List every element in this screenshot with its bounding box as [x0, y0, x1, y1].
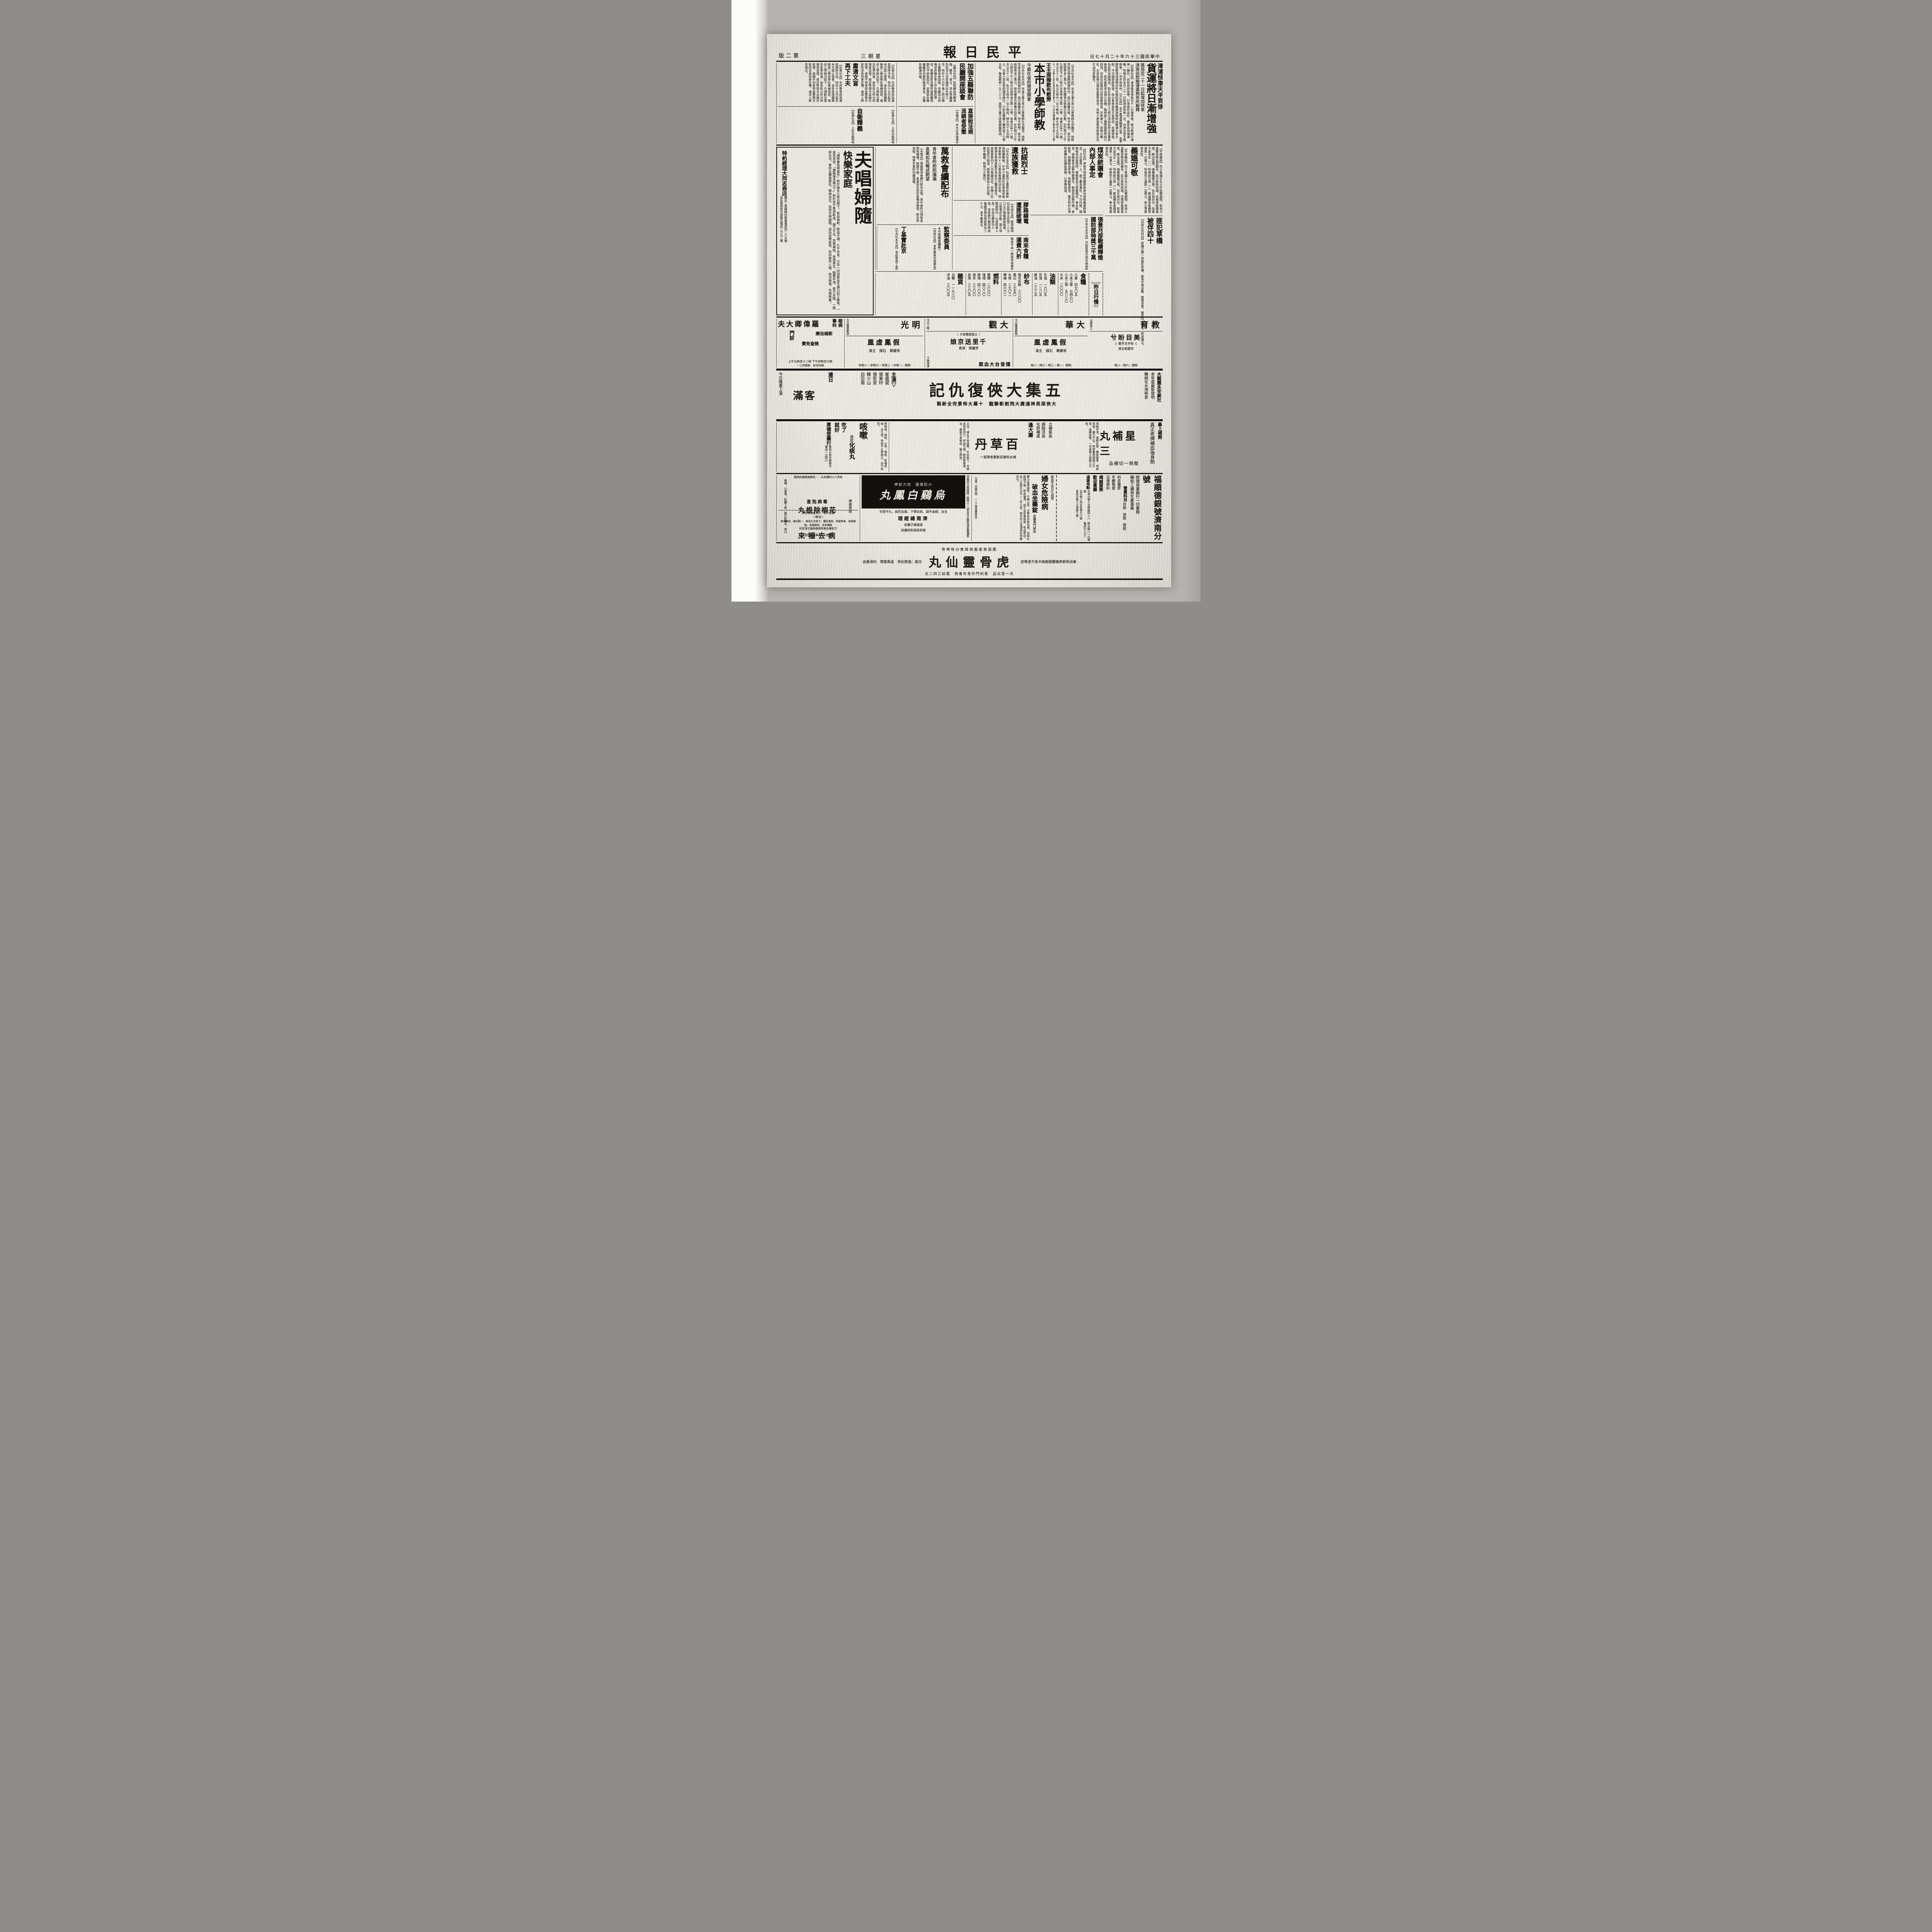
ad-sanxing-line: 真正老牌補血強身劑 — [1149, 422, 1156, 472]
list-item: 嗶嘰 四六六二 — [1003, 273, 1007, 315]
market-title-block: ◇△△◇ 昨日行情 ▽▽ — [1088, 273, 1103, 315]
banner-name: 丸仙靈骨虎 — [929, 553, 1014, 570]
article-nanlai-headline: 南來食糧 運費六折 — [1015, 237, 1029, 270]
ad-baicao-line: 一第牌老藥聖名馳科女婦 — [980, 455, 1016, 459]
ad-huatanwan-seller: 厚德堂藥行 — [825, 422, 832, 446]
ad-hualiu-top: 根除此服根病柳花・・丸本讚均士人界各 — [778, 475, 858, 479]
ad-doctor-note: 一三四號掛 診往科婦 — [778, 364, 843, 367]
list-item: 張宏安 — [871, 372, 877, 418]
ad-kunbaodan-slogan-main: 夫唱婦隨 — [853, 151, 871, 311]
market-items: 白糖 一一九八〇洋油 三〇〇五 — [946, 273, 955, 315]
article-meitan-headline: 煤炭統購會 內部人事定 — [1087, 147, 1103, 213]
cinema-daguan-head: 今日上映 — [926, 319, 930, 330]
ad-bank-line1: 辦理商業銀行一切業務 — [1135, 475, 1139, 514]
column-lianfang-shuifa: 加強五縣聯防 民廳開座談會 【勵志社訊】民政廳為明瞭濟陽、鄒平、章丘、泗水等縣聯… — [896, 63, 973, 143]
article-yiao: 【平度縣訊】烈士崔瑞正女士於抗戰期間，對地方遊擊部隊協助頗多，此次匪陷該城，氏倡… — [1105, 147, 1163, 214]
market-section-name: 雜貨 — [956, 273, 964, 315]
ad-doctor-luo: 眼病 專科 夫大卿偉羅 療治械新 門診 費免查檢 上午九時至十二時 下午四時至六… — [776, 319, 843, 367]
market-section-name: 燃料 — [992, 273, 1000, 315]
ad-bank-line2: 輔助工礦商生產事業 — [1129, 475, 1134, 510]
ad-wuji-blackbox: 神如力効 服易粒小 丸鳳白鷄烏 — [862, 475, 965, 509]
ad-huatanwan: 師傅咳、勞咳、火咳、喘咳、氣喘痰咳、百日咳，常咳不止者服之，永不再犯。 咳嗽 速… — [776, 422, 887, 472]
ad-kunbaodan-slogan-sub: 快樂家庭 — [842, 151, 851, 311]
ad-wuji-seller2: 房藥四利馬街利普 — [862, 528, 965, 532]
cinema-ming-film: 凰虛鳳假 — [846, 337, 923, 347]
divider — [877, 224, 951, 225]
ad-bank-biz: 存款 放款 匯款 — [1122, 502, 1127, 530]
article-jiancha-note: ▲不得兼省議員▽ — [937, 226, 942, 270]
market-section-fuel: 燃料 雙鹽 二六六〇塊煤 四〇二〇飾煤 四二〇〇煤末 三三〇〇泉煤 三三〇五 — [966, 273, 1000, 315]
ad-bank-remits: 天津分號＝吉林路四十八號 北平號＝四交民巷九十號 青島分號＝天津路十號 — [1058, 490, 1091, 521]
ad-funv: 經血不見日久成勞 婦女危險病 破血坐藥錠 此藥專門破血 藥力直達病所，不損元氣，… — [971, 475, 1054, 541]
ad-wuji: 濟南四大馬路緯二路四十一號友光大藥房馮家藥舖售 神如力効 服易粒小 丸鳳白鷄烏 … — [860, 475, 970, 541]
market-deco-top: ◇△△◇ — [1091, 281, 1101, 284]
list-item: 棉花名駒 三八〇〇 — [1017, 273, 1022, 315]
article-jiaolu-headline: 膠路線電 遭匪破壞 — [1015, 202, 1029, 234]
banner-top: 奇神效分實與用服者患屆歷 — [942, 547, 997, 552]
theater-info: 大觀園永安劇社 本年度最新發明 機械化水洩佈景 — [1097, 372, 1162, 418]
list-item: 雙鹽 二六六〇 — [987, 273, 991, 315]
article-nanlai-body: 路局今為一般南來食粮起見，特將南來食粮運費打六折，將南來與南浦段食粮運費特予減低… — [954, 237, 1014, 270]
ad-bank-biz-label: 營業科目 — [1122, 486, 1128, 502]
market-section-food: 食糧 小麥 四七〇五小米三等 七四六〇小米二等 五八三〇大米 二〇〇〇 — [1058, 273, 1087, 315]
article-shuifa-headline: 直接稅法規 派銷者受懲 — [960, 108, 973, 143]
column-meitan-zhang: 煤炭統購會 內部人事定 【同社訊】濟南市煤炭統購委員會內部組織業經確定，主任委員… — [1030, 147, 1103, 270]
article-wanjiu: 萬救會續配布 青年會昨熙熙攘攘 袁業如氏暢述期望 【本報訊】萬國救濟會續行配布衣… — [877, 147, 951, 223]
masthead-weekday: 三期星 — [861, 52, 883, 60]
masthead: 日七十月二十年六十三國民華中 報日民平 三期星 版二第 — [776, 40, 1163, 60]
ad-kunbaodan: 夫唱婦隨 快樂家庭 「調經養血坤寶丹」對於婦女之赤白帶下，氣血兩虧，經血不調，久… — [776, 147, 874, 315]
market-items: 小麥 四七〇五小米三等 七四六〇小米二等 五八三〇大米 二〇〇〇 — [1060, 273, 1078, 315]
article-wang-subhead: 今晨在省府禮堂開會 — [1026, 63, 1032, 143]
list-item: 洋油 三〇〇五 — [946, 273, 951, 315]
market-items: 生油 一六〇五豆油 一二八五香油 二三二五 — [1034, 273, 1048, 315]
list-item: 崔盛斌 — [884, 372, 889, 418]
list-item: 塊煤 四〇二〇 — [982, 273, 986, 315]
column-middle-wrap: 煤炭統購會 內部人事定 【同社訊】濟南市煤炭統購委員會內部組織業經確定，主任委員… — [875, 147, 1103, 315]
article-wang-headline: 本市小學師教 — [1032, 63, 1044, 143]
article-wang-kicker: 王主席撥款布慰勞 — [1045, 63, 1052, 143]
cinema-edu-times: 時八・時六：間時 — [1089, 363, 1163, 367]
article-shuifa: 直接稅法規 派銷者受懲 【本報訊】本市近來發現有人假借直接稅法規派銷圖利情事，該… — [898, 108, 973, 143]
newspaper-scan: 日七十月二十年六十三國民華中 報日民平 三期星 版二第 津浦快車天半到徐 貨運將… — [731, 0, 1201, 602]
banner-right-text: 症等遂不身半麻痠腿腰痛疼節骨治專 — [1021, 559, 1077, 564]
divider — [954, 235, 1029, 236]
banner-left-text: 血養濕利 寒散風追 骨壯筋強：能功 — [862, 559, 922, 564]
ad-kunbaodan-agent: 特約經理大同志商店 總店二馬路緯四路東電話四二八五號 支店普利街中間路北電話二六… — [779, 151, 788, 311]
ad-bank-features: 利息優厚 手續簡便 迅速便利 — [1104, 475, 1121, 541]
market-section-misc: 雜貨 白糖 一一九八〇洋油 三〇〇五 — [875, 273, 964, 315]
divider — [778, 106, 895, 107]
article-wang-body-right: 【中央社本市訊】本省王兼主席以小學教師生活艱苦，除經常設法增進教師福利外，茲以歲… — [1053, 63, 1075, 143]
cinema-ming-name: 光明 — [901, 319, 923, 330]
column-sumang-ziwei: 【民衆社訊】市府教育局為澈底掃除文盲，特自十五日起至本月底止復查，並各區接續開辦… — [776, 63, 895, 143]
masthead-rule — [776, 61, 1163, 62]
ad-hualiu: 根除此服根病柳花・・丸本讚均士人界各 神速見效 星剋病毒 丸根除柳花 楊梅、口便… — [778, 475, 858, 509]
divider — [926, 331, 1011, 332]
ad-kunbaodan-agent-addr: 總店二馬路緯四路東電話四二八五號 支店普利街中間路北電話二六九二號 — [779, 196, 788, 311]
ad-baicao-kicker: 調經活血 化瘀補虛 — [1035, 422, 1045, 472]
row-jiancha-dingji: 監察委員 ▲不得兼省議員▽ 【自由社訊】省參議員自當選為監察委員後，能否兼任省參… — [877, 226, 951, 270]
ad-bingqu-seller: ◇經售處◇ — [778, 541, 858, 541]
ad-funv-note: （注意：孕婦忌用 一二三號坐藥每粒） — [973, 475, 977, 541]
list-item: 香油 二三二五 — [1034, 273, 1038, 315]
ad-sanxing-side: 立補氣血 — [1047, 422, 1053, 472]
list-item: 小麥 四七〇五 — [1074, 273, 1078, 315]
page-content: 日七十月二十年六十三國民華中 報日民平 三期星 版二第 津浦快車天半到徐 貨運將… — [776, 40, 1163, 582]
ad-bingqu-top: 好你保准後天六 和平性藥 — [778, 511, 858, 515]
ad-funv-name: 破血坐藥錠 — [1031, 484, 1039, 513]
ad-hualiu-kicker: 星剋病毒 — [807, 498, 828, 505]
newspaper-page: 日七十月二十年六十三國民華中 報日民平 三期星 版二第 津浦快車天半到徐 貨運將… — [767, 34, 1171, 587]
article-zhangjing: 張景月部戰績輝煌 國防部特獎三千萬 【中央社本市訊】月前張景月部卒挫頑敵，激戰確… — [1030, 217, 1103, 270]
ad-bingqu-root: ◁根治▷ — [778, 515, 858, 519]
article-sumang-body-right: 【民衆社訊】市府教育局為澈底掃除文盲，特自十五日起至本月底止復查，並各區接續開辦… — [860, 63, 895, 105]
article-ziwei-body: 【民衆社訊】人民自衛問題，於昨日第二次座談會中，就人民自衛武力及建軍問題與地方團… — [778, 108, 855, 143]
divider — [898, 106, 973, 107]
cinema-daguan-next-note: 下期准演 — [926, 357, 930, 367]
ad-sanxing-kicker: 最上補劑 — [1156, 422, 1163, 472]
article-jiaolu-body: 【自由社訊】膠濟線周村莊與梁王莊間二八五〇公尺電線被匪破壞，以致電訊中斷，現正加… — [954, 202, 1014, 234]
divider — [778, 510, 858, 510]
market-section-yarn: 紗布 棉花名駒 三八〇〇鳳山 三七五〇丸珠 二七〇二嗶嘰 四六六二 — [1001, 273, 1031, 315]
article-jinpu-body: 【民衆社訊】津浦路濟徐段自十一日通車後，每日除開行通車一輛外，尚有各段加車，行車… — [1076, 63, 1134, 143]
article-jinpu-headline: 貨運將日漸增強 — [1146, 63, 1156, 143]
ad-wuji-seller1: 房藥子樂路張 — [862, 523, 965, 527]
ad-baicao-body: 主治：婦女子宮虛寒、吐血帶下、月經血忽多忽少、停血不調、經色黑紫或淡、婚後不育等… — [891, 422, 969, 472]
theater-full-block: 連日 滿客 今日隆重上演 — [777, 372, 834, 418]
article-kangsui-headline: 抗綏烈士 遺族獲救 — [1010, 147, 1029, 199]
ad-sanxing-tag: 品補切一倒壓 — [1109, 460, 1139, 466]
article-zhangjing-headline: 張景月部戰績輝煌 國防部特獎三千萬 — [1089, 217, 1103, 270]
masthead-date: 日七十月二十年六十三國民華中 — [1090, 53, 1160, 60]
ad-bank-addr: 緯五路八一九號 電話九八五一 — [1058, 522, 1091, 541]
ad-wuji-cure: 孕受不久、病百女婦、下帶白赤、調不血經：治主 — [862, 510, 965, 514]
article-wang: 【中央社本市訊】本省王兼主席以小學教師生活艱苦，除經常設法增進教師福利外，茲以歲… — [975, 63, 1075, 143]
article-ziwei: 【民衆社訊】人民自衛問題，於昨日第二次座談會中，就人民自衛武力及建軍問題與地方團… — [778, 108, 895, 143]
cinema-daguan: 觀大 今日上映 〕片鉅豔香裝古〔 娘京送里千 賓賀 華麗李 案血大台音播 下期准… — [925, 319, 1011, 367]
article-dingji-body: 【中央社本市訊】省府委員丁基實氏，頃因公赴京。 — [878, 226, 898, 270]
ad-baicao-promo: 逢大廉 — [1027, 422, 1034, 472]
ad-doctor-times: 上午九時至十二時 下午四時至六時 — [778, 359, 843, 364]
ad-funv-headline: 婦女危險病 — [1039, 475, 1049, 541]
band-rule-4 — [776, 542, 1163, 543]
theater-title: 記仇復俠大集五 — [929, 383, 1065, 398]
cinema-ming-cast: 演主 揮石 華麗李 — [846, 348, 923, 353]
cinema-edu-film: 兮盼目美 — [1089, 332, 1163, 342]
theater-full2: 滿客 — [793, 388, 816, 402]
theater-subtitle: 製新全完景佈大幕十 龍摯斬劍飛大廣通神英梁俠大 — [937, 401, 1057, 407]
theater-full1: 連日 — [827, 372, 834, 418]
band-medicines: 最上補劑 真正老牌補血強身劑 丸補星三 品補切一倒壓 滑精早洩、遺精失勢、腰痠腿… — [776, 422, 1163, 472]
ad-doctor-line1: 療治械新 — [816, 330, 833, 340]
article-wanjiu-sub1: 青年會昨熙熙攘攘 — [931, 147, 937, 223]
ad-sanxing: 最上補劑 真正老牌補血強身劑 丸補星三 品補切一倒壓 滑精早洩、遺精失勢、腰痠腿… — [1047, 422, 1163, 472]
ad-funv-intro: 此藥專門破血 — [1032, 514, 1037, 533]
list-item: 豆油 一二八五 — [1038, 273, 1043, 315]
ad-wuji-name: 丸鳳白鷄烏 — [879, 487, 947, 502]
article-dingji-headline: 丁基實赴京 — [899, 226, 907, 270]
column-hualiu-bingqu: 根除此服根病柳花・・丸本讚均士人界各 神速見效 星剋病毒 丸根除柳花 楊梅、口便… — [776, 475, 858, 541]
cinema-daguan-name: 觀大 — [989, 319, 1011, 330]
ad-baicao: 調經活血 化瘀補虛 逢大廉 丹草百 一第牌老藥聖名馳科女婦 主治：婦女子宮虛寒、… — [889, 422, 1045, 472]
list-item: 白糖 一一九八〇 — [951, 273, 955, 315]
divider — [954, 200, 1029, 201]
article-shuifa-body: 【本報訊】本市近來發現有人假借直接稅法規派銷圖利情事，該局對於此種情形特佈告周知… — [898, 108, 959, 143]
article-jiancha-body: 【自由社訊】省參議員自當選為監察委員後，能否兼任省參議員問題，現已有指示：當選為… — [908, 226, 936, 270]
band-rule-3 — [776, 473, 1163, 474]
article-jinpu-kicker: 津浦快車天半到徐 — [1156, 63, 1163, 143]
article-zhangjing-body: 【中央社本市訊】月前張景月部卒挫頑敵，激戰確保重鎮，戰績輝煌，國防部頃特獎三千萬… — [1030, 217, 1088, 270]
cinema-dahua-name: 華大 — [1065, 319, 1088, 330]
article-dingji: 丁基實赴京 【中央社本市訊】省府委員丁基實氏，頃因公赴京。 — [877, 226, 907, 270]
article-wanjiu-sub2: 袁業如氏暢述期望 — [924, 147, 930, 223]
article-ziwei-body-right: 【民衆社訊】人民自衛問題，於昨日第二次座談會中，就人民自衛武力及建軍問題與地方團… — [864, 108, 895, 143]
article-meitan-body: 【同社訊】濟南市煤炭統購委員會內部組織業經確定，主任委員一人，由丁廳長兼任，下分… — [1030, 147, 1086, 213]
ad-huatanwan-pre: 速效 — [849, 435, 854, 442]
list-item: 丸珠 二七〇二 — [1008, 273, 1012, 315]
ad-bingqu-name: 來福去病 — [778, 531, 858, 541]
column-wanjiu: 萬救會續配布 青年會昨熙熙攘攘 袁業如氏暢述期望 【本報訊】萬國救濟會續行配布衣… — [875, 147, 951, 270]
cinema-edu-cast: 演主妮娜安 — [1089, 347, 1163, 351]
list-item: 小米三等 七四六〇 — [1069, 273, 1073, 315]
article-yiao-body-right: 【平度縣訊】烈士崔瑞正女士於抗戰期間，對地方遊擊部隊協助頗多，此次匪陷該城，氏倡… — [1140, 147, 1163, 214]
masthead-edition: 版二第 — [779, 52, 801, 60]
article-jiaolu: 膠路線電 遭匪破壞 【自由社訊】膠濟線周村莊與梁王莊間二八五〇公尺電線被匪破壞，… — [954, 202, 1029, 234]
ad-bingqu-line: 好定准它服快趕者效無丸藥針打 — [778, 527, 858, 531]
article-jiancha-headline: 監察委員 — [942, 226, 951, 270]
band-bottom-ads: 福順德銀號濟南分號 辦理商業銀行一切業務 輔助工礦商生產事業 營業科目 存款 放… — [776, 475, 1163, 541]
article-ziwei-headline: 自衛釋義 — [855, 108, 864, 143]
market-title: 昨日行情 — [1092, 284, 1100, 304]
theater-today: 今日隆重上演 — [777, 372, 783, 418]
ad-bank-slogans: 竭誠服務 歡迎惠顧 — [1092, 475, 1104, 541]
market-section-name: 油類 — [1048, 273, 1056, 315]
ad-huatanwan-body-r: 師傅咳、勞咳、火咳、喘咳、氣喘痰咳、百日咳，常咳不止者服之，永不再犯。 — [870, 422, 887, 472]
cinema-dahua-film: 凰虛鳳假 — [1014, 337, 1088, 347]
cinema-edu-tag: 山東省立 — [1089, 319, 1093, 330]
band-theater-ad: 大觀園永安劇社 本年度最新發明 機械化水洩佈景 記仇復俠大集五 製新全完景佈大幕… — [776, 369, 1163, 421]
market-section-name: 紗布 — [1022, 273, 1031, 315]
cinema-dahua-cast: 演主 揮石 華麗李 — [1014, 348, 1088, 353]
article-sumang-body: 【民衆社訊】市府教育局為澈底掃除文盲，特自十五日起至本月底止復查，並各區接續開辦… — [778, 63, 842, 105]
ad-funv-body: 藥力直達病所，不損元氣，且無如自取毛病。治婦女經閉不通、瘀血凝滯、血不見氣裏血聚… — [978, 475, 1030, 541]
article-jinpu: 津浦快車天半到徐 貨運將日漸增強 路局定二十一日起增加快車 濟南站對搬運業務有所… — [1076, 63, 1163, 143]
ad-kunbaodan-agent-name: 特約經理大同志商店 — [779, 151, 788, 196]
list-item: 白亞南 — [859, 372, 865, 418]
ad-huatanwan-big: 咳嗽 — [857, 422, 869, 472]
ad-funv-side: 經血不見日久成勞 — [1050, 475, 1054, 541]
ad-doctor-name: 夫大卿偉羅 — [778, 319, 820, 329]
cinema-dahua-times: 時八・時六・時三・時一：間時 — [1014, 363, 1088, 367]
cinema-edu: 育教 山東省立 兮盼目美 》幕字文中有《 演主妮娜安 時八・時六：間時 — [1089, 319, 1163, 367]
list-item: 大米 二〇〇〇 — [1060, 273, 1064, 315]
ad-huatanwan-name: 化痰丸 — [848, 442, 856, 459]
theater-troupe: 大觀園永安劇社 — [1156, 372, 1162, 418]
market-deco-bottom: ▽▽ — [1094, 304, 1098, 308]
article-yiao-body: 【平度縣訊】烈士崔瑞正女士於抗戰期間，對地方遊擊部隊協助頗多，此次匪陷該城，氏倡… — [1105, 147, 1128, 214]
ad-huatanwan-relief: 吃了 就好 — [833, 422, 847, 472]
cinema-edu-note: 》幕字文中有《 — [1089, 342, 1163, 346]
market-items: 雙鹽 二六六〇塊煤 四〇二〇飾煤 四二〇〇煤末 三三〇〇泉煤 三三〇五 — [967, 273, 991, 315]
article-lianfang: 加強五縣聯防 民廳開座談會 【勵志社訊】民政廳為明瞭濟陽、鄒平、章丘、泗水等縣聯… — [898, 63, 973, 105]
cinema-dahua: 華大 今日隆重獻映 凰虛鳳假 演主 揮石 華麗李 時八・時六・時三・時一：間時 — [1013, 319, 1088, 367]
article-wang-body: 【中央社本市訊】本省王兼主席以小學教師生活艱苦，除經常設法增進教師福利外，茲以歲… — [976, 63, 1025, 143]
ad-doctor-spec: 眼病 專科 — [831, 319, 843, 327]
ad-doctor-line2: 費免查檢 — [778, 340, 843, 347]
theater-cast-list: 崔盛斌張美玲張宏安韓少山白亞南 — [859, 372, 889, 418]
list-item: 張美玲 — [878, 372, 883, 418]
cinema-daguan-cast: 賓賀 華麗李 — [926, 346, 1011, 350]
article-yiao-headline: 義媼可敬 — [1129, 147, 1139, 214]
list-item: 韓少山 — [866, 372, 871, 418]
cinema-daguan-film: 娘京送里千 — [926, 337, 1011, 346]
list-item: 飾煤 四二〇〇 — [977, 273, 981, 315]
cinema-edu-name: 育教 — [1140, 319, 1163, 330]
list-item: 煤末 三三〇〇 — [972, 273, 976, 315]
article-sumang: 【民衆社訊】市府教育局為澈底掃除文盲，特自十五日起至本月底止復查，並各區接續開辦… — [778, 63, 895, 105]
article-lianfang-body: 【勵志社訊】民政廳為明瞭濟陽、鄒平、章丘、泗水等縣聯防狀況以及各縣研討冬季工作，… — [898, 63, 957, 105]
ad-bank-lines: 辦理商業銀行一切業務 輔助工礦商生產事業 — [1128, 475, 1139, 541]
masthead-title: 報日民平 — [943, 46, 1030, 60]
divider — [1105, 216, 1163, 216]
divider — [875, 271, 1103, 272]
banner-bottom: 五二四三話電 西會年青外門利普 品出堂一天 — [925, 571, 1014, 576]
band-top-news: 津浦快車天半到徐 貨運將日漸增強 路局定二十一日起增加快車 濟南站對搬運業務有所… — [776, 63, 1163, 143]
market-items: 棉花名駒 三八〇〇鳳山 三七五〇丸珠 二七〇二嗶嘰 四六六二 — [1003, 273, 1022, 315]
article-kangsui-body: 【中央社本市訊】抗綏烈士遺族於春節前將獲撫救，中央十遺族於此事係省振濟會第四十八… — [954, 147, 1009, 199]
article-wanjiu-headline: 萬救會續配布 — [938, 147, 951, 223]
cinema-mingguang: 光明 今日隆重獻演 凰虛鳳假 演主 揮石 華麗李 半時八・半時六・半時三・半時一… — [844, 319, 923, 367]
article-jiancha: 監察委員 ▲不得兼省議員▽ 【自由社訊】省參議員自當選為監察委員後，能否兼任省參… — [908, 226, 950, 270]
article-wanjiu-body: 【本報訊】萬國救濟會續行配布衣物，青年會昨日領取者熙熙攘攘，絡繹不絕，袁業如氏對… — [877, 147, 923, 223]
market-table: ◇△△◇ 昨日行情 ▽▽ 食糧 小麥 四七〇五小米三等 七四六〇小米二等 五八三… — [875, 273, 1103, 315]
list-item: 鳳山 三七五〇 — [1012, 273, 1017, 315]
article-sumang-headline: 肅清文盲 再下工夫 — [843, 63, 859, 105]
ad-sanxing-body: 滑精早洩、遺精失勢、腰痠腿疼、神經衰弱、腦力不足，用興奮劑調服之立效，強腰固精，… — [1053, 422, 1099, 472]
theater-line1: 本年度最新發明 — [1149, 372, 1155, 418]
divider — [1014, 336, 1088, 336]
band-banner: 奇神效分實與用服者患屆歷 症等遂不身半麻痠腿腰痛疼節骨治專 丸仙靈骨虎 血養濕利… — [776, 544, 1163, 580]
ad-sanxing-name: 丸補星三 — [1100, 428, 1148, 458]
theater-cast-block: 主演▽ 崔盛斌張美玲張宏安韓少山白亞南 — [835, 372, 897, 418]
market-section-name: 食糧 — [1079, 273, 1087, 315]
ad-baicao-name: 丹草百 — [975, 435, 1021, 452]
column-kangsui: 抗綏烈士 遺族獲救 【中央社本市訊】抗綏烈士遺族於春節前將獲撫救，中央十遺族於此… — [952, 147, 1029, 270]
ad-bank-name: 福順德銀號濟南分號 — [1140, 475, 1163, 541]
ad-bingqu-list: 發未痛耳、破未點一、病毛久年疳下、腫紅毒餘、疼痠骨串、眉落髮脫、疼痠肢四、淨多爛… — [778, 519, 858, 527]
ad-bingqu: 好你保准後天六 和平性藥 ◁根治▷ 發未痛耳、破未點一、病毛久年疳下、腫紅毒餘、… — [778, 511, 858, 541]
ad-huatanwan-addr: 普利大街中間路北 電話一五四六 — [825, 446, 832, 472]
ad-doctor-menzhen: 門診 — [788, 330, 795, 340]
list-item: 泉煤 三三〇五 — [967, 273, 971, 315]
divider — [1030, 215, 1103, 215]
ad-wuji-side: 濟南四大馬路緯二路四十一號友光大藥房馮家藥舖售 — [966, 475, 970, 541]
ad-wuji-slogan: 神如力効 服易粒小 — [894, 482, 932, 487]
divider — [1089, 331, 1163, 332]
theater-title-block: 記仇復俠大集五 製新全完景佈大幕十 龍摯斬劍飛大廣通神英梁俠大 — [899, 372, 1095, 418]
article-nanlai: 南來食糧 運費六折 路局今為一般南來食粮起見，特將南來食粮運費打六折，將南來與南… — [954, 237, 1029, 270]
cinema-daguan-next: 案血大台音播 — [979, 361, 1011, 367]
cinema-ming-head: 今日隆重獻演 — [846, 319, 850, 335]
divider — [846, 336, 923, 336]
cinema-dahua-head: 今日隆重獻映 — [1014, 319, 1018, 335]
column-right-edge: 【平度縣訊】烈士崔瑞正女士於抗戰期間，對地方遊擊部隊協助頗多，此次匪陷該城，氏倡… — [1105, 147, 1163, 315]
band-cinemas: 育教 山東省立 兮盼目美 》幕字文中有《 演主妮娜安 時八・時六：間時 華大 今… — [776, 319, 1163, 367]
ad-kunbaodan-body: 「調經養血坤寶丹」對於婦女之赤白帶下，氣血兩虧，經血不調，久不孕育，以及一切因經… — [789, 151, 840, 311]
list-item: 生油 一六〇五 — [1043, 273, 1048, 315]
list-item: 小米二等 五八三〇 — [1064, 273, 1068, 315]
article-kangsui: 抗綏烈士 遺族獲救 【中央社本市訊】抗綏烈士遺族於春節前將獲撫救，中央十遺族於此… — [954, 147, 1029, 199]
ad-bank-remit-label: 通匯地點 — [1058, 475, 1091, 489]
band-rule-1 — [776, 145, 1163, 146]
article-jinpu-subheads: 路局定二十一日起增加快車 濟南站對搬運業務有所解釋 — [1134, 63, 1145, 143]
theater-cast-label: 主演▽ — [890, 372, 897, 418]
cinema-ming-times: 半時八・半時六・半時三・半時一：間時 — [846, 363, 923, 367]
article-meitan: 煤炭統購會 內部人事定 【同社訊】濟南市煤炭統購委員會內部組織業經確定，主任委員… — [1030, 147, 1103, 213]
middle-articles: 煤炭統購會 內部人事定 【同社訊】濟南市煤炭統購委員會內部組織業經確定，主任委員… — [875, 147, 1103, 270]
ad-wuji-mgr: 理經總南濟 — [862, 515, 965, 522]
market-section-oil: 油類 生油 一六〇五豆油 一二八五香油 二三二五 — [1032, 273, 1056, 315]
ad-bank: 福順德銀號濟南分號 辦理商業銀行一切業務 輔助工礦商生產事業 營業科目 存款 放… — [1056, 475, 1163, 541]
band-middle: 【平度縣訊】烈士崔瑞正女士於抗戰期間，對地方遊擊部隊協助頗多，此次匪陷該城，氏倡… — [776, 147, 1163, 315]
cinema-daguan-tag: 〕片鉅豔香裝古〔 — [926, 332, 1011, 337]
theater-line2: 機械化水洩佈景 — [1143, 372, 1148, 418]
article-lianfang-headline: 加強五縣聯防 民廳開座談會 — [957, 63, 973, 105]
